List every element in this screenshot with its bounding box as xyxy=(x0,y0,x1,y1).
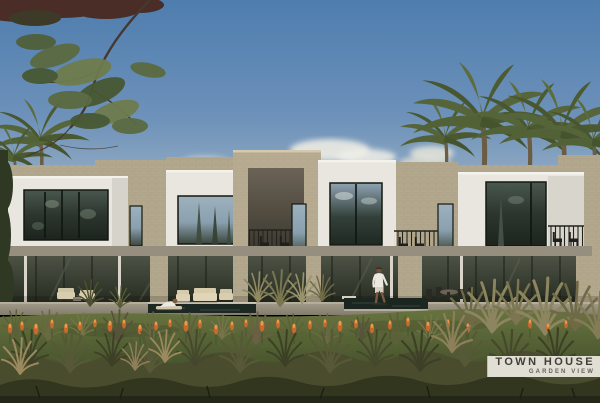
project-title-badge: TOWN HOUSE GARDEN VIEW xyxy=(487,356,600,377)
scene-illustration xyxy=(0,0,600,403)
window-right-upper xyxy=(486,182,546,246)
window-left-upper xyxy=(24,190,108,240)
balcony-far-right xyxy=(548,226,584,250)
patio-sofa-set-center xyxy=(176,288,217,303)
stone-parapet-mid xyxy=(166,157,238,171)
window-slit-left xyxy=(130,206,142,246)
badge-subtitle: GARDEN VIEW xyxy=(529,369,595,376)
unit-left xyxy=(8,176,128,258)
unit-right-center xyxy=(318,160,396,256)
townhouse-render-image: TOWN HOUSE GARDEN VIEW xyxy=(0,0,600,403)
stone-parapet-left xyxy=(95,160,173,176)
unit-middle xyxy=(166,170,238,259)
window-middle-upper xyxy=(178,196,236,244)
unit-right xyxy=(458,172,584,257)
badge-title: TOWN HOUSE xyxy=(495,357,595,369)
patio-armchair-mid-left xyxy=(219,289,233,300)
soffit xyxy=(8,246,592,256)
window-slit-right xyxy=(438,204,453,252)
window-right-center xyxy=(330,183,382,245)
